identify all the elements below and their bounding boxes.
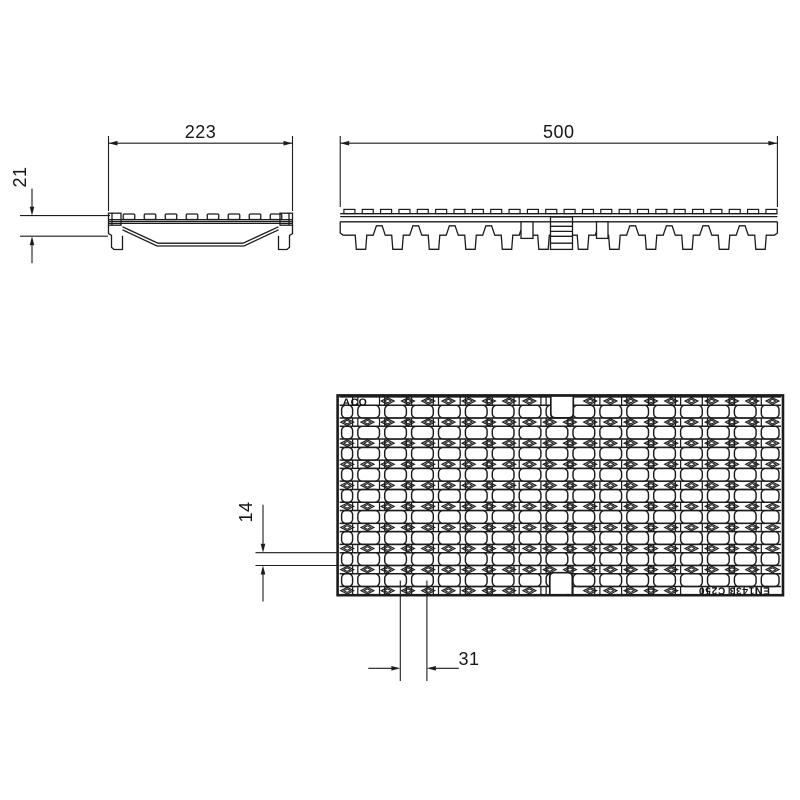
edge-rail-left <box>109 225 123 250</box>
standard-mark: EN1433 C250 <box>698 585 770 596</box>
plan-view <box>256 395 784 681</box>
dim-label-14: 14 <box>236 501 256 522</box>
dim-label-223: 223 <box>185 122 217 142</box>
end-view <box>20 136 293 263</box>
dim-14 <box>256 505 339 602</box>
technical-drawing-grate: 223 21 500 <box>0 0 800 800</box>
dim-21 <box>20 189 110 264</box>
plan-slot-openings <box>342 405 779 586</box>
side-tab-right <box>597 222 609 239</box>
lock-notch-bottom <box>550 573 573 594</box>
dim-label-31: 31 <box>458 649 479 669</box>
dim-label-21: 21 <box>10 166 30 187</box>
edge-rail-right <box>279 225 293 250</box>
lock-block <box>551 217 573 249</box>
lock-notch-top <box>551 397 574 418</box>
end-view-studs <box>123 214 282 220</box>
side-tab-left <box>521 222 533 239</box>
dim-223 <box>109 136 293 211</box>
brand-mark: ACO <box>343 396 368 408</box>
dim-label-500: 500 <box>543 122 575 142</box>
dim-500 <box>340 136 777 207</box>
side-view <box>340 136 777 249</box>
